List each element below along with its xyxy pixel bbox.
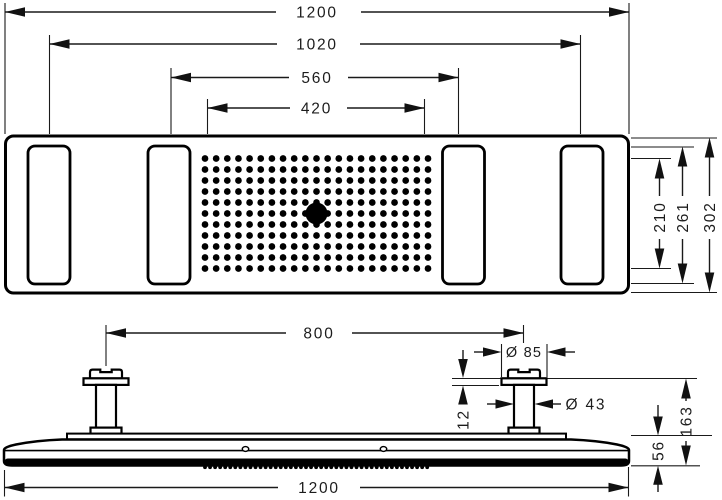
spray-dot [425, 177, 432, 184]
spray-dot [347, 177, 354, 184]
spray-dot [369, 265, 376, 272]
spray-dot [280, 177, 287, 184]
spray-dot [302, 188, 309, 195]
spray-dot [202, 221, 209, 228]
spray-dot [235, 188, 242, 195]
spray-dot [358, 221, 365, 228]
nozzle-dot [208, 465, 212, 469]
spray-dot [302, 166, 309, 173]
spray-dot [402, 155, 409, 162]
spray-dot [347, 254, 354, 261]
spray-dot [257, 243, 264, 250]
spray-dot [269, 265, 276, 272]
technical-drawing-sheet: 1200 1020 560 420 [0, 0, 722, 500]
spray-dot [335, 254, 342, 261]
spray-dot [224, 188, 231, 195]
nozzle-dot [274, 465, 278, 469]
right-ceiling-connector [502, 370, 547, 434]
spray-dot [414, 199, 421, 206]
spray-dot [380, 210, 387, 217]
spray-dot [313, 243, 320, 250]
spray-dot [347, 243, 354, 250]
nozzle-dot [254, 465, 258, 469]
spray-dot [414, 155, 421, 162]
shower-dimension-drawing: 1200 1020 560 420 [0, 0, 722, 500]
spray-dot [358, 243, 365, 250]
dim-label-overall-depth: 302 [702, 201, 719, 232]
nozzle-dot [415, 465, 419, 469]
spray-dot [324, 221, 331, 228]
arrowhead [208, 103, 228, 113]
spray-dot [269, 188, 276, 195]
nozzle-dot [309, 465, 313, 469]
spray-dot [302, 254, 309, 261]
spray-dot [257, 155, 264, 162]
spray-dot [380, 199, 387, 206]
spray-dot [425, 243, 432, 250]
spray-dot [358, 177, 365, 184]
spray-dot [335, 188, 342, 195]
spray-dot [324, 166, 331, 173]
spray-dot [313, 155, 320, 162]
spray-dot [302, 265, 309, 272]
spray-dot [213, 221, 220, 228]
spray-dot [347, 232, 354, 239]
spray-dot [235, 221, 242, 228]
spray-dot [335, 155, 342, 162]
nozzle-dot [355, 465, 359, 469]
connector-pipe [96, 385, 116, 428]
spray-dot [391, 221, 398, 228]
spray-dot [202, 254, 209, 261]
spray-dot [302, 199, 309, 206]
spray-dot [425, 221, 432, 228]
nozzle-dot [314, 465, 318, 469]
spray-dot [246, 243, 253, 250]
spray-dot [369, 232, 376, 239]
spray-dot [425, 166, 432, 173]
spray-dot [391, 166, 398, 173]
arrowhead [678, 264, 688, 284]
spray-dot [235, 199, 242, 206]
spray-dot [414, 188, 421, 195]
spray-dot [280, 210, 287, 217]
spray-dot [347, 210, 354, 217]
spray-dot [347, 166, 354, 173]
spray-dot [202, 265, 209, 272]
spray-dot [269, 177, 276, 184]
spray-dot [202, 188, 209, 195]
nozzle-dot [233, 465, 237, 469]
spray-dot [380, 177, 387, 184]
spray-dot [291, 188, 298, 195]
spray-dot [313, 232, 320, 239]
spray-dot [335, 210, 342, 217]
spray-dot [335, 265, 342, 272]
arrowhead [655, 249, 665, 269]
dim-label-spray-field-height: 210 [652, 201, 669, 232]
spray-dot [246, 199, 253, 206]
spray-dot [280, 232, 287, 239]
arrowhead [653, 466, 663, 485]
nozzle-dot [223, 465, 227, 469]
spray-dot [369, 155, 376, 162]
arrowhead [458, 386, 468, 405]
spray-dot [324, 199, 331, 206]
top-view: 1200 1020 560 420 [5, 3, 719, 293]
spray-dot [380, 188, 387, 195]
spray-dot [269, 166, 276, 173]
spray-dot [257, 221, 264, 228]
spray-dot [235, 243, 242, 250]
spray-dot [402, 188, 409, 195]
arrowhead [609, 7, 629, 17]
spray-dot [302, 177, 309, 184]
spray-dot [425, 210, 432, 217]
spray-dot [414, 177, 421, 184]
dim-label-body-height: 56 [650, 440, 667, 461]
spray-dot [269, 199, 276, 206]
spray-dot [202, 177, 209, 184]
spray-dot [280, 155, 287, 162]
dim-overall-width-bottom: 1200 [5, 467, 629, 497]
spray-dot [302, 221, 309, 228]
nozzle-dot [385, 465, 389, 469]
dim-body-height: 56 [631, 405, 712, 492]
spray-dot [235, 265, 242, 272]
spray-dot [257, 210, 264, 217]
arrowhead [705, 138, 715, 158]
spray-dot [291, 254, 298, 261]
spray-dot [324, 188, 331, 195]
dim-spray-field-height: 210 [652, 159, 669, 269]
dim-label-inner-jet-spacing: 560 [301, 70, 332, 87]
spray-dot [246, 155, 253, 162]
spray-dot [347, 155, 354, 162]
spray-dot [224, 221, 231, 228]
spray-dot [257, 177, 264, 184]
spray-dot [313, 265, 320, 272]
nozzle-dot [203, 465, 207, 469]
spray-dot [369, 210, 376, 217]
spray-dot [347, 188, 354, 195]
arrowhead [705, 273, 715, 293]
spray-dot [213, 188, 220, 195]
spray-dot [369, 254, 376, 261]
spray-dot [324, 254, 331, 261]
spray-dot [414, 221, 421, 228]
spray-dot [335, 221, 342, 228]
spray-dot [291, 199, 298, 206]
dim-label-spray-field-width: 420 [301, 100, 332, 117]
spray-dot [269, 155, 276, 162]
nozzle-dot [350, 465, 354, 469]
spray-dot [358, 188, 365, 195]
spray-dot [335, 166, 342, 173]
spray-dot [402, 166, 409, 173]
dim-inner-jet-spacing: 560 [171, 70, 459, 87]
spray-dot [280, 166, 287, 173]
arrowhead [653, 417, 663, 436]
spray-dot [391, 243, 398, 250]
spray-dot [380, 221, 387, 228]
spray-dot [425, 199, 432, 206]
nozzle-dot [259, 465, 263, 469]
spray-dot [280, 221, 287, 228]
spray-zone-slot-3 [443, 146, 485, 284]
dim-spray-field-width: 420 [208, 100, 425, 117]
spray-dot [257, 199, 264, 206]
spray-dot [235, 177, 242, 184]
spray-dot [380, 265, 387, 272]
spray-dot [246, 221, 253, 228]
head-bottom-band [5, 459, 629, 466]
dim-overall-width-top: 1200 [5, 4, 629, 21]
spray-dot [391, 210, 398, 217]
spray-dot [235, 210, 242, 217]
spray-dot [358, 166, 365, 173]
spray-dot [391, 254, 398, 261]
spray-dot [369, 199, 376, 206]
spray-dot [269, 210, 276, 217]
nozzle-dot [269, 465, 273, 469]
nozzle-dot [289, 465, 293, 469]
spray-dot [347, 221, 354, 228]
spray-dot [280, 188, 287, 195]
seam-screw-right [380, 447, 386, 452]
spray-dot [213, 155, 220, 162]
spray-dot [224, 155, 231, 162]
spray-dot [380, 254, 387, 261]
spray-dot [414, 232, 421, 239]
nozzle-dot [360, 465, 364, 469]
spray-dot [358, 254, 365, 261]
arrowhead [535, 399, 554, 408]
spray-dot [291, 155, 298, 162]
arrowhead [655, 159, 665, 179]
spray-dot [313, 166, 320, 173]
connector-cap [508, 370, 540, 379]
spray-dot [202, 166, 209, 173]
spray-dot [380, 155, 387, 162]
dim-label-overall-width-top: 1200 [296, 4, 338, 21]
nozzle-dot [375, 465, 379, 469]
spray-dot [246, 265, 253, 272]
dim-label-jet-slot-height: 261 [675, 201, 692, 232]
nozzle-dot [249, 465, 253, 469]
spray-dot [224, 254, 231, 261]
arrowhead [483, 347, 502, 356]
arrowhead [678, 147, 688, 167]
spray-dot [291, 265, 298, 272]
dim-flange-height: 12 [455, 350, 472, 430]
spray-dot [280, 199, 287, 206]
spray-dot [302, 232, 309, 239]
spray-dot [257, 166, 264, 173]
dim-label-total-height: 163 [678, 405, 695, 436]
spray-dot [235, 232, 242, 239]
nozzle-dot [329, 465, 333, 469]
spray-dot [235, 254, 242, 261]
spray-dot [213, 199, 220, 206]
spray-dot [324, 155, 331, 162]
spray-dot [391, 232, 398, 239]
spray-dot [369, 243, 376, 250]
spray-dot [291, 232, 298, 239]
spray-dot [369, 221, 376, 228]
spray-dot [391, 199, 398, 206]
nozzle-dot [264, 465, 268, 469]
spray-dot [335, 177, 342, 184]
spray-dot [257, 188, 264, 195]
spray-dot [246, 166, 253, 173]
spray-dot [213, 210, 220, 217]
spray-dot [402, 221, 409, 228]
spray-dot [358, 265, 365, 272]
spray-dot [213, 265, 220, 272]
nozzle-dot [284, 465, 288, 469]
spray-dot [302, 155, 309, 162]
spray-dot [235, 166, 242, 173]
nozzle-dot [228, 465, 232, 469]
spray-dot [425, 232, 432, 239]
arrowhead [5, 483, 25, 493]
spray-dot [380, 232, 387, 239]
spray-dot [291, 166, 298, 173]
nozzle-dot [294, 465, 298, 469]
spray-dot [257, 232, 264, 239]
spray-dot [213, 254, 220, 261]
nozzle-dot [400, 465, 404, 469]
spray-dot [369, 188, 376, 195]
center-nozzle-dot [306, 203, 328, 225]
spray-dot [291, 177, 298, 184]
arrowhead [547, 347, 566, 356]
spray-dot [391, 265, 398, 272]
spray-dot [402, 210, 409, 217]
dim-label-outer-jet-spacing: 1020 [296, 36, 338, 53]
spray-dot [324, 232, 331, 239]
spray-dot [358, 210, 365, 217]
spray-dot [224, 199, 231, 206]
nozzle-dot [238, 465, 242, 469]
arrowhead [50, 39, 70, 49]
spray-dot [358, 232, 365, 239]
arrowhead [439, 73, 459, 83]
spray-dot [402, 199, 409, 206]
spray-dot [425, 254, 432, 261]
spray-dot [213, 243, 220, 250]
nozzle-dot [299, 465, 303, 469]
spray-dot [291, 221, 298, 228]
spray-dot [324, 177, 331, 184]
arrowhead [681, 446, 691, 466]
spray-dot [402, 265, 409, 272]
spray-dot [302, 243, 309, 250]
spray-zone-slot-1 [28, 146, 70, 284]
spray-dot [391, 188, 398, 195]
spray-dot [257, 265, 264, 272]
spray-dot [391, 177, 398, 184]
nozzle-dot [339, 465, 343, 469]
spray-dot [369, 166, 376, 173]
nozzle-dot [244, 465, 248, 469]
nozzle-dot [324, 465, 328, 469]
spray-dot [414, 265, 421, 272]
spray-dot [202, 210, 209, 217]
nozzle-dot [425, 465, 429, 469]
dim-label-overall-width-bottom: 1200 [298, 480, 340, 497]
seam-screw-left [242, 447, 248, 452]
spray-dot [402, 232, 409, 239]
nozzle-dot [410, 465, 414, 469]
spray-dot [414, 166, 421, 173]
arrowhead [504, 328, 524, 338]
spray-dot [425, 265, 432, 272]
spray-dot [414, 243, 421, 250]
spray-dot [335, 243, 342, 250]
spray-dot [347, 199, 354, 206]
spray-dot [335, 232, 342, 239]
spray-dot [224, 232, 231, 239]
spray-dot [324, 265, 331, 272]
spray-dot [213, 232, 220, 239]
nozzle-dot [395, 465, 399, 469]
spray-dot [425, 155, 432, 162]
arrowhead [561, 39, 581, 49]
arrowhead [5, 7, 25, 17]
side-view: 800 [4, 325, 712, 497]
spray-dot [324, 243, 331, 250]
spray-dot [213, 166, 220, 173]
spray-dot [224, 243, 231, 250]
spray-dot [391, 155, 398, 162]
spray-dot [224, 210, 231, 217]
connector-pipe [514, 385, 534, 428]
spray-dot [313, 254, 320, 261]
spray-dot [269, 243, 276, 250]
left-ceiling-connector [84, 370, 129, 434]
nozzle-dot [420, 465, 424, 469]
spray-dot [313, 188, 320, 195]
arrowhead [609, 483, 629, 493]
nozzle-dot [345, 465, 349, 469]
spray-dot [402, 254, 409, 261]
spray-dot [280, 265, 287, 272]
arrowhead [171, 73, 191, 83]
spray-dot [358, 155, 365, 162]
spray-dot [246, 177, 253, 184]
arrowhead [496, 399, 515, 408]
spray-dot [347, 265, 354, 272]
spray-dot [246, 210, 253, 217]
spray-dot [213, 177, 220, 184]
spray-dot [257, 254, 264, 261]
spray-dot [369, 177, 376, 184]
nozzle-dot [304, 465, 308, 469]
spray-dot [380, 243, 387, 250]
spray-dot [224, 177, 231, 184]
spray-dot [202, 232, 209, 239]
dim-label-pipe-diameter: Ø 43 [566, 396, 607, 413]
spray-dot [280, 243, 287, 250]
spray-dot [291, 210, 298, 217]
nozzle-dot [390, 465, 394, 469]
connector-cap [90, 370, 122, 379]
arrowhead [405, 103, 425, 113]
dim-jet-slot-height: 261 [675, 147, 692, 284]
spray-dot [269, 232, 276, 239]
